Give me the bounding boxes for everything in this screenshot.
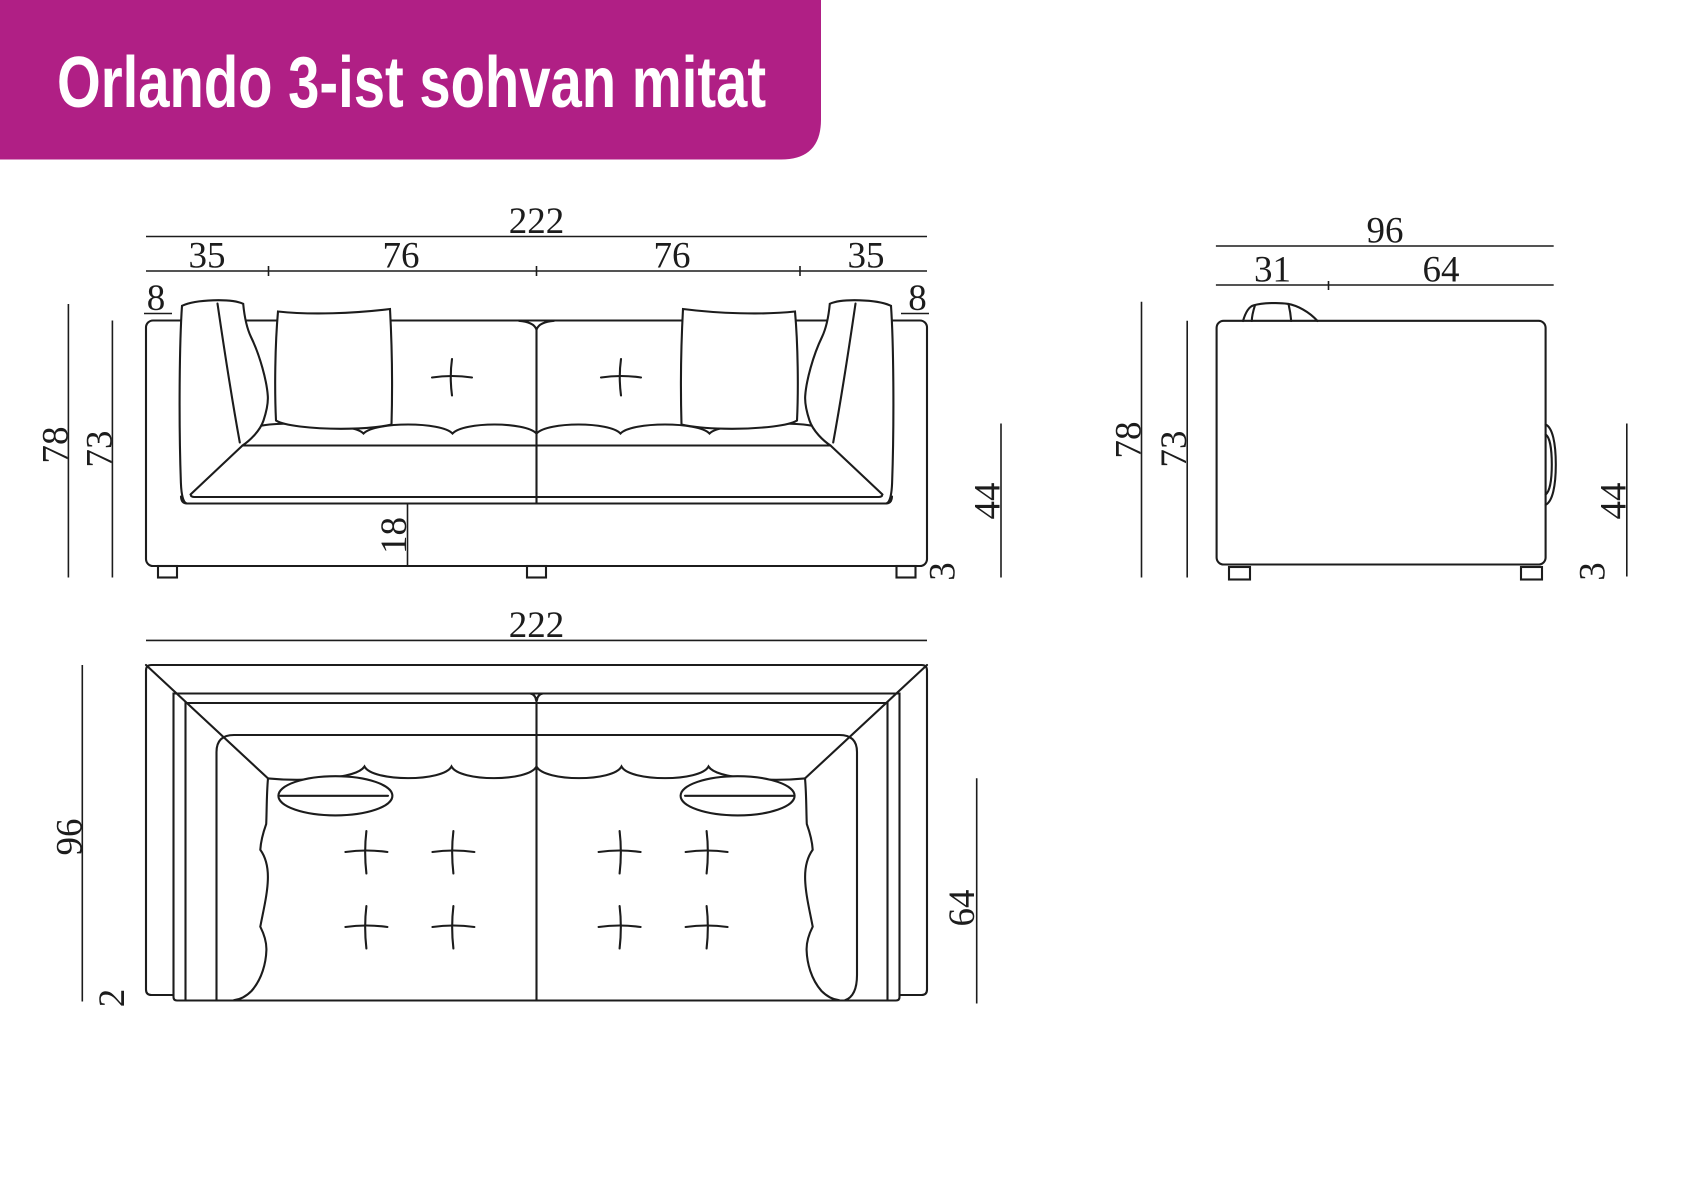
svg-text:78: 78 — [36, 427, 77, 464]
svg-text:3: 3 — [1573, 562, 1614, 581]
svg-text:64: 64 — [1423, 250, 1460, 291]
svg-text:Orlando 3-ist sohvan mitat: Orlando 3-ist sohvan mitat — [57, 42, 766, 122]
svg-text:31: 31 — [1254, 250, 1291, 291]
svg-text:18: 18 — [374, 517, 415, 554]
svg-text:35: 35 — [848, 236, 885, 277]
svg-text:222: 222 — [509, 605, 565, 646]
svg-text:96: 96 — [1367, 211, 1404, 252]
svg-text:2: 2 — [92, 989, 133, 1008]
svg-text:76: 76 — [654, 236, 691, 277]
svg-text:76: 76 — [383, 236, 420, 277]
svg-text:44: 44 — [1594, 483, 1635, 520]
svg-text:44: 44 — [968, 483, 1009, 520]
svg-text:222: 222 — [509, 201, 565, 242]
svg-text:35: 35 — [189, 236, 226, 277]
svg-text:64: 64 — [942, 890, 983, 927]
svg-text:73: 73 — [1154, 431, 1195, 468]
svg-text:73: 73 — [80, 431, 121, 468]
svg-text:78: 78 — [1109, 422, 1150, 459]
svg-text:3: 3 — [923, 562, 964, 581]
svg-text:96: 96 — [49, 819, 90, 856]
